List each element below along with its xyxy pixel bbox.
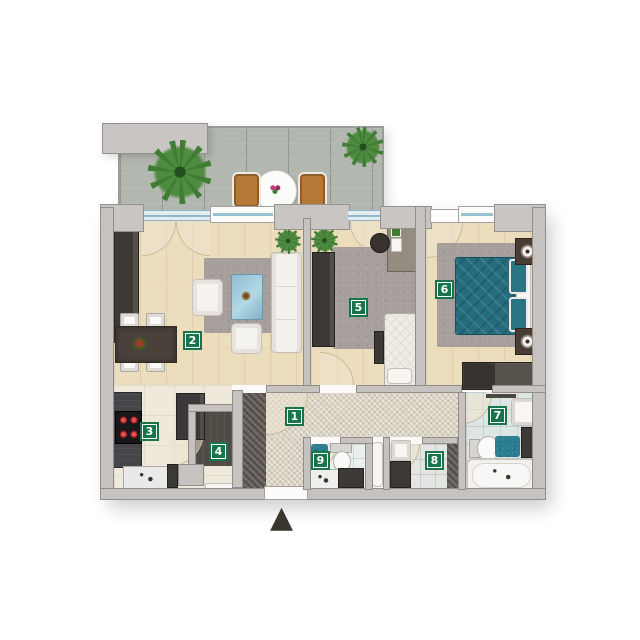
faucet-icon <box>124 467 168 489</box>
faucet-icon <box>468 460 535 491</box>
glass-pane <box>144 215 212 217</box>
hallway-carpet-lower <box>266 437 303 488</box>
outer-wall-top-block <box>274 204 350 230</box>
entrance-door-sill <box>264 486 308 500</box>
outer-wall-bottom <box>100 488 546 500</box>
entrance-doormat <box>243 393 266 488</box>
armchair <box>231 323 262 354</box>
patio-chair <box>232 172 261 209</box>
room-label-5: 5 <box>349 298 368 317</box>
service-shaft <box>447 440 458 488</box>
floorplan-canvas: 1 2 3 4 5 6 7 8 9 ▲ <box>0 0 640 640</box>
room-label-3: 3 <box>140 422 159 441</box>
room-label-9: 9 <box>311 451 330 470</box>
balcony-glass-door <box>144 210 212 221</box>
room-label-6: 6 <box>435 280 454 299</box>
entrance-arrow-icon: ▲ <box>270 503 293 533</box>
glass-pane <box>213 213 273 216</box>
desk-plant-icon <box>391 228 401 237</box>
wc-sink <box>307 469 339 490</box>
bed-pillow <box>509 297 528 332</box>
interior-wall <box>178 464 204 486</box>
window <box>210 206 276 223</box>
dining-table <box>115 326 177 363</box>
interior-wall <box>415 206 426 387</box>
window <box>458 206 496 223</box>
interior-wall <box>383 437 390 490</box>
plant-icon <box>342 127 384 167</box>
plant-icon <box>148 140 212 204</box>
outer-wall-right <box>532 207 546 500</box>
interior-wall <box>232 390 243 488</box>
room-label-2: 2 <box>183 331 202 350</box>
bed-pillow <box>387 368 412 384</box>
cooktop-icon <box>115 411 142 444</box>
bath-mat <box>495 436 520 457</box>
interior-wall <box>340 437 373 444</box>
glass-pane <box>461 213 493 216</box>
interior-wall <box>356 385 462 393</box>
laptop-icon <box>391 238 402 252</box>
wardrobe <box>312 252 335 347</box>
sofa <box>271 252 302 353</box>
kitchen-side-cabinet <box>167 464 178 488</box>
faucet-icon <box>308 470 338 489</box>
plant-icon <box>275 228 301 254</box>
interior-wall <box>303 218 311 387</box>
door-sill <box>430 209 460 223</box>
armchair <box>192 279 223 316</box>
flower-decor-icon <box>268 183 282 195</box>
desk-chair <box>370 233 390 253</box>
wc-cabinet <box>338 468 364 488</box>
outer-wall-left <box>100 207 114 500</box>
glass-pane <box>348 215 382 217</box>
interior-wall <box>458 392 466 490</box>
interior-wall <box>365 437 373 490</box>
room-label-7: 7 <box>488 406 507 425</box>
room-label-4: 4 <box>209 442 228 461</box>
interior-wall <box>266 385 320 393</box>
interior-wall <box>492 385 546 393</box>
balcony-glass-door <box>348 210 382 221</box>
coffee-table-decor-icon <box>241 291 251 301</box>
room-label-8: 8 <box>425 451 444 470</box>
kitchen-sink <box>123 466 169 490</box>
door-leaf <box>372 442 383 487</box>
interior-wall <box>303 437 311 490</box>
bathroom-cabinet <box>390 461 411 488</box>
room-label-1: 1 <box>285 407 304 426</box>
bathroom-sink <box>391 440 411 461</box>
interior-wall <box>422 437 458 444</box>
nightstand <box>374 331 384 364</box>
table-centerpiece-icon <box>133 337 146 350</box>
